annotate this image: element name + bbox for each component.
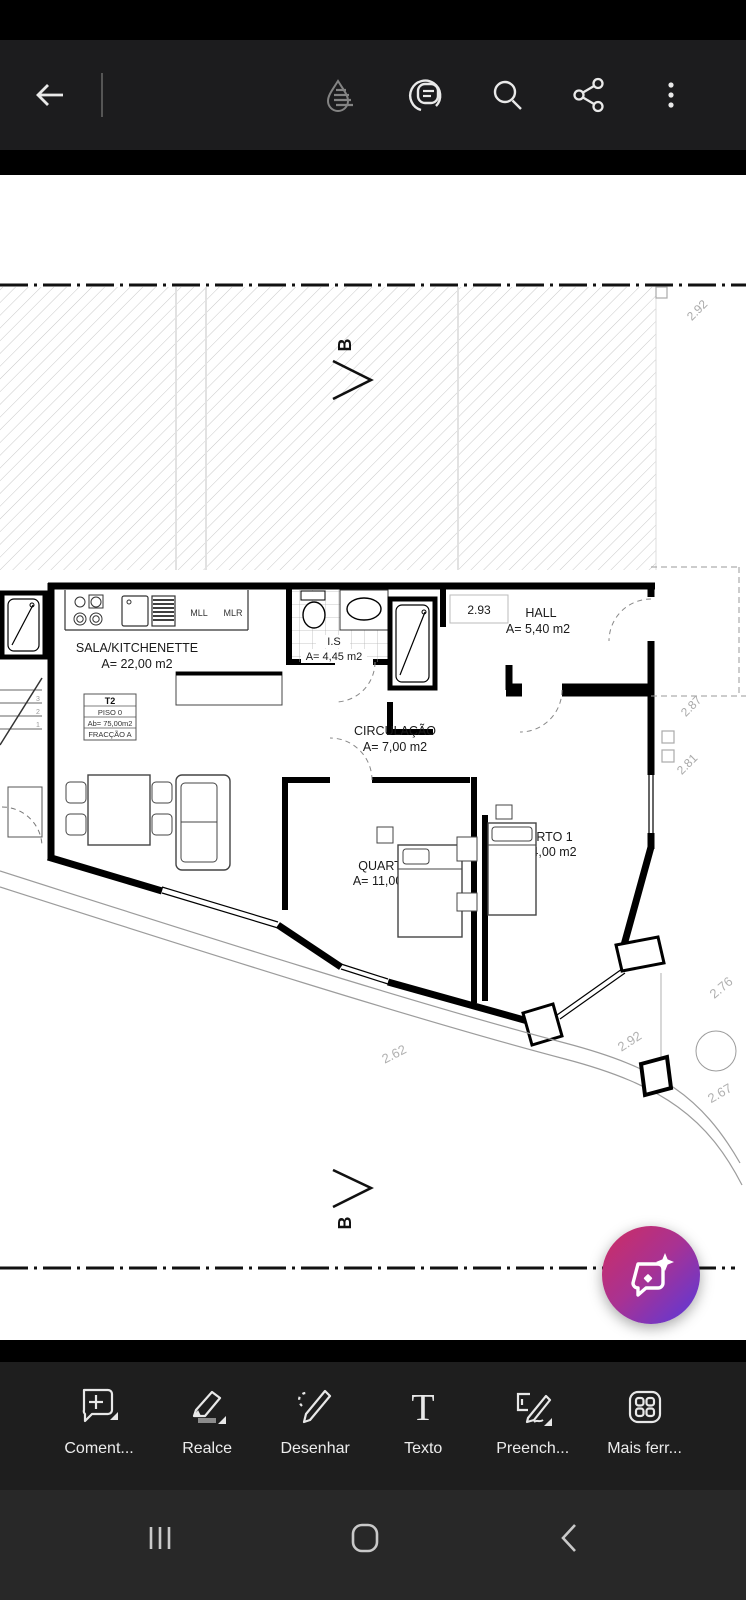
overflow-menu-icon[interactable]	[651, 75, 691, 115]
section-letter: B	[335, 1217, 355, 1230]
app-bar-shadow-strip	[0, 150, 746, 175]
tool-label: Texto	[404, 1440, 442, 1458]
room-area-sala: A= 22,00 m2	[101, 657, 172, 671]
section-marker-bottom: B	[333, 1170, 371, 1230]
neighbour-unit: 3 2 1	[0, 593, 45, 847]
room-area-is: A= 4,45 m2	[306, 651, 363, 663]
stair-number: 1	[36, 722, 40, 729]
tool-fill-sign[interactable]: Preench...	[496, 1384, 569, 1458]
app-bar	[0, 40, 746, 150]
dim-right-upper: 2.87	[678, 693, 705, 720]
property-line-hatch: 2.92	[0, 285, 746, 570]
tool-label: Desenhar	[280, 1440, 349, 1458]
unit-info-table: T2 PISO 0 Ab= 75,00m2 FRACÇÃO A	[84, 694, 136, 740]
recents-icon[interactable]	[138, 1516, 182, 1560]
unit-fraction: FRACÇÃO A	[88, 730, 131, 739]
dim-corner-lower: 2.67	[705, 1080, 734, 1106]
room-name-circulacao: CIRCULAÇÃO	[354, 724, 436, 738]
label-mll: MLL	[190, 608, 208, 618]
room-area-circulacao: A= 7,00 m2	[363, 740, 427, 754]
dim-right-lower: 2.81	[674, 751, 701, 778]
bathroom: I.S A= 4,45 m2	[292, 590, 435, 688]
floor-plan-drawing: 2.92 B 3 2 1	[0, 175, 746, 1340]
tool-label: Mais ferr...	[607, 1440, 682, 1458]
tool-draw[interactable]: Desenhar	[280, 1384, 350, 1458]
toolbar-shadow-strip	[0, 1340, 746, 1362]
screen: 2.92 B 3 2 1	[0, 0, 746, 1600]
dim-bottom-middle: 2.92	[615, 1028, 644, 1054]
annotation-toolbar: Coment... Realce Desenhar T Texto	[0, 1362, 746, 1490]
kitchen: MLL MLR	[65, 590, 248, 630]
unit-type: T2	[105, 696, 116, 706]
dim-bottom-left: 2.62	[379, 1042, 408, 1067]
ai-assistant-fab[interactable]	[602, 1226, 700, 1324]
tool-label: Coment...	[64, 1440, 133, 1458]
pdf-page[interactable]: 2.92 B 3 2 1	[0, 175, 746, 1340]
back-icon[interactable]	[30, 75, 70, 115]
tool-comment[interactable]: Coment...	[64, 1384, 134, 1458]
stair-number: 2	[36, 709, 40, 716]
dim-corner-upper: 2.76	[707, 974, 736, 1002]
search-icon[interactable]	[487, 75, 527, 115]
tool-highlight[interactable]: Realce	[172, 1384, 242, 1458]
dim-top-right: 2.92	[684, 297, 711, 324]
stair-number: 3	[36, 696, 40, 703]
android-nav-bar	[0, 1490, 746, 1600]
room-name-is: I.S	[327, 636, 340, 648]
room-name-sala: SALA/KITCHENETTE	[76, 641, 198, 655]
comments-view-icon[interactable]	[405, 75, 445, 115]
back-nav-icon[interactable]	[548, 1516, 592, 1560]
status-bar	[0, 0, 746, 40]
unit-floor: PISO 0	[98, 708, 122, 717]
unit-gross-area: Ab= 75,00m2	[88, 719, 133, 728]
dim-hall-width: 2.93	[467, 603, 491, 617]
tool-label: Preench...	[496, 1440, 569, 1458]
section-letter: B	[335, 339, 355, 352]
label-mlr: MLR	[223, 608, 243, 618]
right-dimensions: 2.87 2.81	[662, 693, 705, 778]
tool-more-tools[interactable]: Mais ferr...	[607, 1384, 682, 1458]
svg-text:T: T	[412, 1387, 435, 1429]
share-icon[interactable]	[569, 75, 609, 115]
home-icon[interactable]	[343, 1516, 387, 1560]
room-area-hall: A= 5,40 m2	[506, 622, 570, 636]
chat-sparkle-icon	[625, 1249, 677, 1301]
toolbar-divider	[101, 73, 103, 117]
tool-text[interactable]: T Texto	[388, 1384, 458, 1458]
liquid-mode-icon[interactable]	[323, 75, 363, 115]
tool-label: Realce	[182, 1440, 232, 1458]
room-name-hall: HALL	[525, 606, 556, 620]
